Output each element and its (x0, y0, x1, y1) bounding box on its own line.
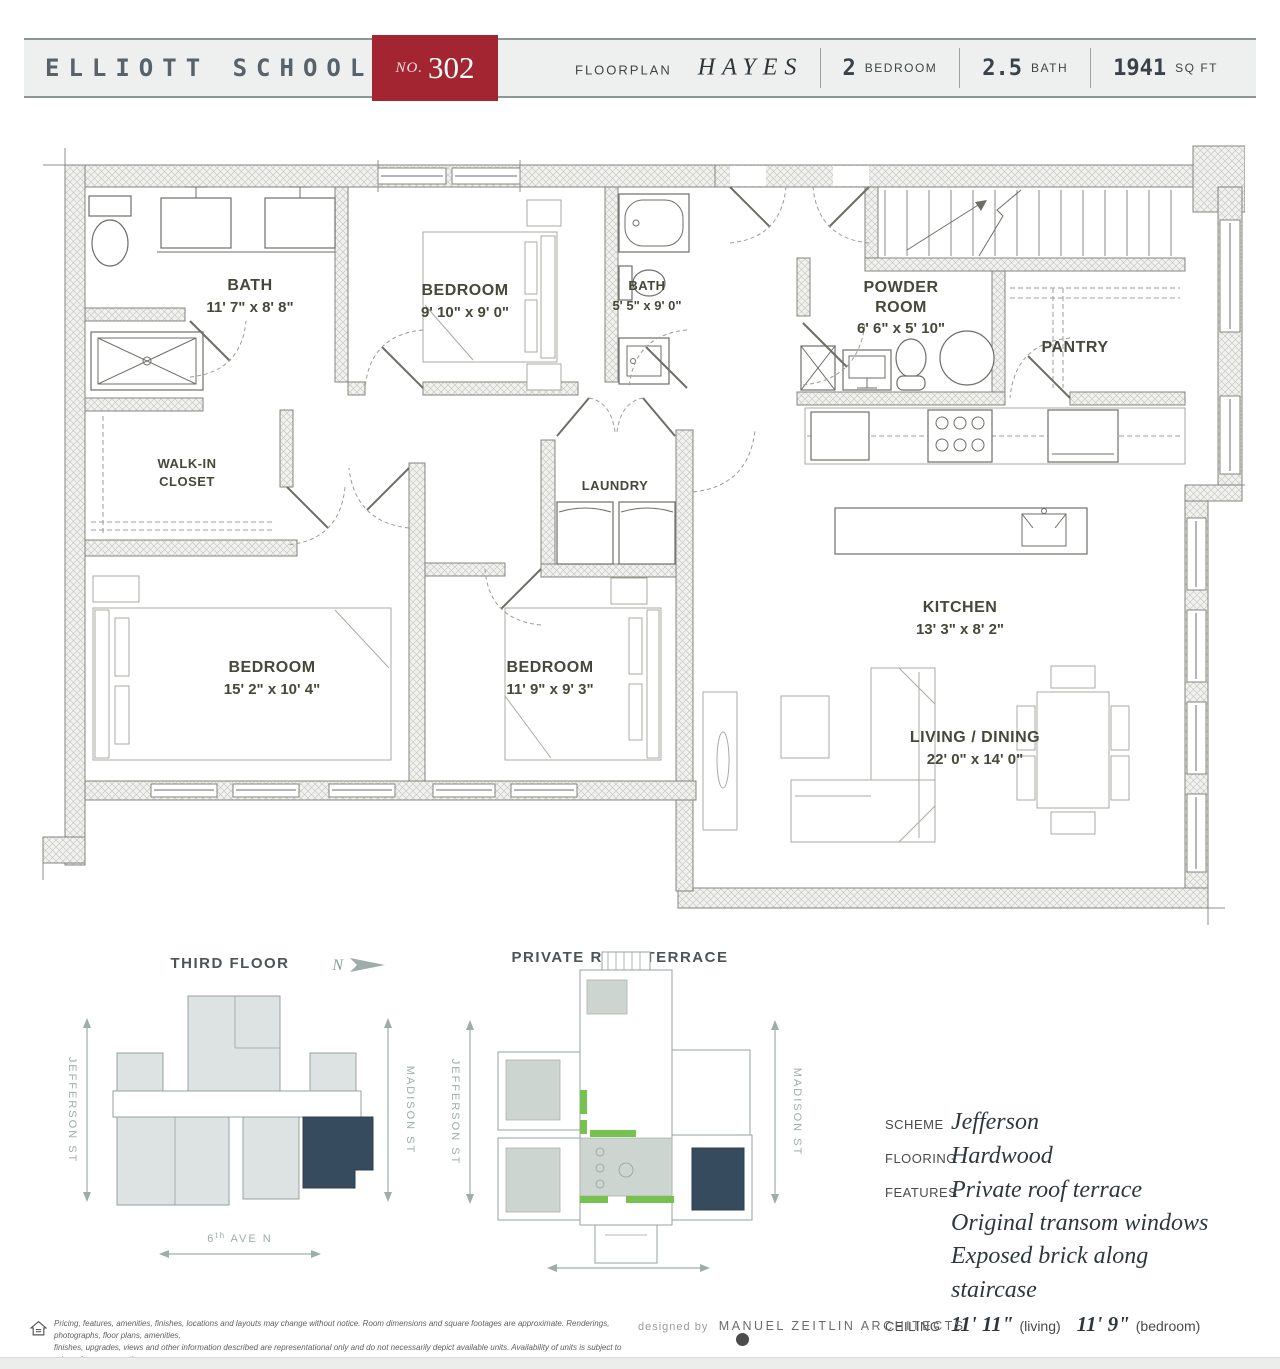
ceiling-value: 11' 11" (living) 11' 9" (bedroom) (951, 1308, 1200, 1341)
stat-sqft: 1941 SQ FT (1090, 48, 1240, 88)
bath1-fixtures (89, 187, 335, 390)
north-arrow-icon: N (331, 957, 385, 974)
stat-bedrooms: 2 BEDROOM (820, 48, 960, 88)
street-left-label: JEFFERSON ST (449, 1059, 461, 1166)
unit-stats: 2 BEDROOM 2.5 BATH 1941 SQ FT (820, 40, 1240, 96)
ceiling-bedroom-value: 11' 9" (1077, 1312, 1130, 1336)
room-label-powder-2: ROOM (875, 299, 927, 316)
features-value: Private roof terrace Original transom wi… (951, 1174, 1230, 1306)
designed-by-label: designed by (638, 1321, 708, 1333)
unit-number: 302 (428, 50, 475, 86)
unit-number-badge: NO. 302 (372, 35, 498, 101)
bedroom-count: 2 (843, 56, 856, 81)
unit-number-prefix: NO. (395, 60, 423, 77)
floor-plan: BATH 11' 7" x 8' 8" BEDROOM 9' 10" x 9' … (35, 140, 1245, 940)
street-right-label: MADISON ST (404, 1066, 416, 1154)
third-floor-footprint (113, 996, 373, 1205)
room-label-living: LIVING / DINING (910, 729, 1040, 746)
bath-unit-label: BATH (1031, 61, 1068, 75)
room-label-bed1: BEDROOM (421, 282, 508, 299)
room-dims-bed2: 15' 2" x 10' 4" (224, 681, 320, 698)
detail-row-scheme: SCHEME Jefferson (885, 1106, 1230, 1139)
room-label-bed3: BEDROOM (506, 659, 593, 676)
scheme-value: Jefferson (951, 1106, 1039, 1139)
feature-3: Exposed brick along staircase (951, 1240, 1230, 1306)
kitchen-counter (805, 408, 1185, 464)
room-dims-living: 22' 0" x 14' 0" (927, 751, 1023, 768)
feature-2: Original transom windows (951, 1207, 1230, 1240)
stat-baths: 2.5 BATH (959, 48, 1090, 88)
floorplan-name: HAYES (698, 55, 804, 82)
third-floor-key-plan: THIRD FLOOR N JEFFERSON ST MADISON ST 6t… (55, 948, 420, 1283)
room-label-bed2: BEDROOM (228, 659, 315, 676)
living-furniture (703, 668, 935, 842)
ceiling-living-note: (living) (1019, 1318, 1060, 1334)
unit-details: SCHEME Jefferson FLOORING Hardwood FEATU… (885, 1106, 1230, 1342)
roof-terrace-key-plan: PRIVATE ROOF TERRACE JEFFERSON ST MADISO… (430, 940, 810, 1295)
sqft-unit-label: SQ FT (1175, 61, 1218, 75)
street-right-label: MADISON ST (791, 1068, 803, 1156)
room-dims-bath2: 5' 5" x 9' 0" (612, 298, 681, 313)
staircase (885, 190, 1171, 256)
north-label: N (331, 957, 344, 974)
bath-count: 2.5 (982, 56, 1022, 81)
room-label-laundry: LAUNDRY (582, 478, 649, 493)
page-bottom-edge (0, 1357, 1280, 1369)
floorplan-title: FLOORPLAN HAYES (575, 55, 803, 82)
room-label-bath1: BATH (227, 277, 272, 294)
flooring-value: Hardwood (951, 1140, 1053, 1173)
powder-room-fixtures (801, 331, 994, 390)
feature-1: Private roof terrace (951, 1174, 1230, 1207)
room-label-closet-1: WALK-IN (157, 456, 216, 471)
dining-set (1017, 666, 1129, 834)
room-label-closet-2: CLOSET (159, 474, 215, 489)
room-dims-bed1: 9' 10" x 9' 0" (421, 304, 509, 321)
roof-terrace-footprint (498, 952, 752, 1263)
unit-302-highlight (303, 1117, 373, 1188)
flooring-label: FLOORING (885, 1140, 951, 1173)
detail-row-flooring: FLOORING Hardwood (885, 1140, 1230, 1173)
equal-housing-icon (30, 1320, 47, 1337)
sqft-count: 1941 (1113, 56, 1166, 81)
kitchen-island (835, 508, 1087, 554)
architect-name: MANUEL ZEITLIN ARCHITECTS (719, 1319, 966, 1333)
room-dims-powder: 6' 6" x 5' 10" (857, 320, 945, 337)
room-label-powder-1: POWDER (864, 279, 939, 296)
room-dims-bed3: 11' 9" x 9' 3" (506, 681, 593, 698)
features-label: FEATURES (885, 1174, 951, 1306)
pantry-shelves (1010, 288, 1180, 388)
room-label-pantry: PANTRY (1042, 339, 1109, 356)
ceiling-bedroom-note: (bedroom) (1136, 1318, 1201, 1334)
laundry-appliances (557, 502, 675, 564)
architect-logo-dot-icon (736, 1333, 749, 1346)
scheme-label: SCHEME (885, 1106, 951, 1139)
room-dims-bath1: 11' 7" x 8' 8" (206, 299, 293, 316)
room-label-kitchen: KITCHEN (923, 599, 998, 616)
bedroom-unit-label: BEDROOM (865, 61, 938, 75)
unit-302-roof-highlight (692, 1148, 744, 1210)
third-floor-title: THIRD FLOOR (171, 955, 290, 972)
street-left-label: JEFFERSON ST (66, 1057, 78, 1164)
header-bar: ELLIOTT SCHOOL NO. 302 FLOORPLAN HAYES 2… (24, 38, 1256, 98)
room-dims-kitchen: 13' 3" x 8' 2" (916, 621, 1004, 638)
floorplan-label: FLOORPLAN (575, 63, 672, 78)
disclaimer-line-1: Pricing, features, amenities, finishes, … (54, 1318, 639, 1342)
street-bottom-label: 6th AVE N (207, 1231, 272, 1245)
detail-row-features: FEATURES Private roof terrace Original t… (885, 1174, 1230, 1306)
architect-credit: designed by MANUEL ZEITLIN ARCHITECTS (638, 1317, 966, 1335)
room-label-bath2: BATH (628, 278, 665, 293)
building-name: ELLIOTT SCHOOL (45, 54, 373, 82)
